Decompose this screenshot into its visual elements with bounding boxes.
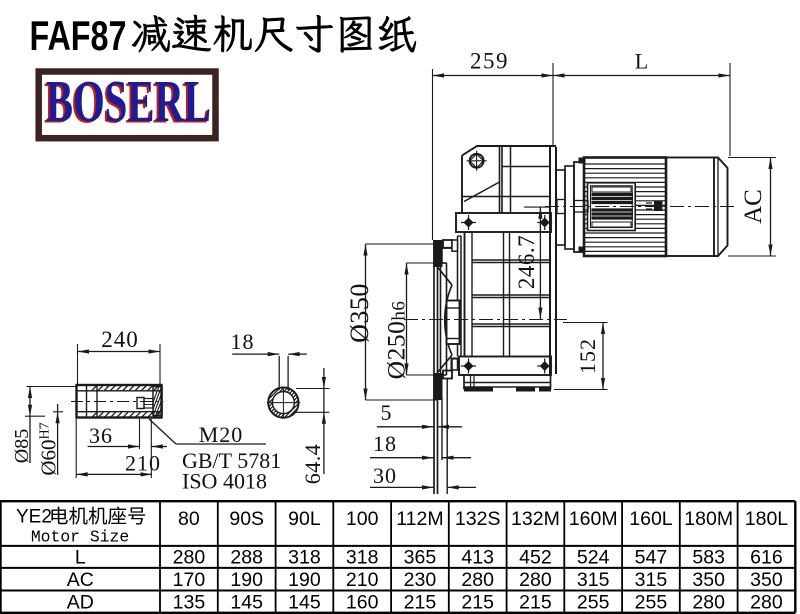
- svg-text:5: 5: [381, 400, 392, 425]
- svg-text:L: L: [75, 547, 86, 569]
- svg-text:350: 350: [692, 569, 725, 591]
- svg-text:288: 288: [230, 547, 263, 569]
- svg-text:246.7: 246.7: [514, 235, 539, 289]
- svg-text:90S: 90S: [229, 508, 264, 530]
- svg-text:524: 524: [577, 547, 610, 569]
- svg-text:145: 145: [288, 592, 321, 614]
- svg-text:BOSERL: BOSERL: [46, 69, 211, 134]
- svg-text:180L: 180L: [745, 508, 789, 530]
- svg-text:318: 318: [288, 547, 321, 569]
- svg-text:90L: 90L: [288, 508, 321, 530]
- svg-text:190: 190: [230, 569, 263, 591]
- svg-text:215: 215: [519, 592, 552, 614]
- svg-text:315: 315: [635, 569, 668, 591]
- svg-text:AC: AC: [740, 189, 767, 224]
- svg-text:30: 30: [373, 463, 397, 488]
- svg-text:Ø350: Ø350: [345, 283, 374, 343]
- svg-text:280: 280: [173, 547, 206, 569]
- svg-text:YE2: YE2: [16, 507, 52, 528]
- svg-text:210: 210: [346, 569, 379, 591]
- svg-text:280: 280: [692, 592, 725, 614]
- svg-text:318: 318: [346, 547, 379, 569]
- svg-text:112M: 112M: [396, 508, 443, 530]
- svg-text:259: 259: [470, 49, 509, 74]
- svg-text:Ø250h6: Ø250h6: [382, 301, 411, 380]
- svg-text:ISO 4018: ISO 4018: [182, 469, 267, 494]
- svg-text:255: 255: [635, 592, 668, 614]
- svg-text:547: 547: [635, 547, 668, 569]
- svg-text:315: 315: [577, 569, 610, 591]
- svg-text:145: 145: [230, 592, 263, 614]
- svg-text:AD: AD: [67, 592, 94, 614]
- svg-text:160L: 160L: [629, 508, 673, 530]
- svg-text:Ø60H7: Ø60H7: [37, 422, 61, 475]
- svg-text:152: 152: [575, 338, 600, 374]
- svg-text:36: 36: [89, 423, 113, 448]
- svg-text:18: 18: [231, 329, 255, 354]
- svg-text:FAF87: FAF87: [30, 12, 127, 59]
- svg-text:280: 280: [750, 592, 783, 614]
- svg-text:280: 280: [461, 569, 494, 591]
- svg-text:280: 280: [519, 569, 552, 591]
- svg-text:210: 210: [125, 451, 161, 476]
- svg-text:160: 160: [346, 592, 379, 614]
- svg-text:583: 583: [692, 547, 725, 569]
- svg-text:365: 365: [404, 547, 437, 569]
- svg-text:240: 240: [101, 327, 139, 352]
- svg-text:230: 230: [404, 569, 437, 591]
- svg-text:452: 452: [519, 547, 552, 569]
- svg-text:190: 190: [288, 569, 321, 591]
- svg-text:L: L: [635, 49, 648, 74]
- svg-text:132S: 132S: [455, 508, 501, 530]
- svg-text:180M: 180M: [684, 508, 733, 530]
- svg-text:215: 215: [461, 592, 494, 614]
- svg-text:616: 616: [750, 547, 783, 569]
- svg-text:M20: M20: [199, 422, 244, 447]
- svg-text:160M: 160M: [569, 508, 618, 530]
- svg-text:Motor Size: Motor Size: [31, 528, 129, 547]
- svg-text:64.4: 64.4: [300, 444, 325, 485]
- svg-text:18: 18: [373, 431, 397, 456]
- svg-text:170: 170: [173, 569, 206, 591]
- svg-text:132M: 132M: [511, 508, 560, 530]
- svg-text:135: 135: [173, 592, 206, 614]
- svg-text:255: 255: [577, 592, 610, 614]
- svg-text:Ø85: Ø85: [11, 429, 33, 463]
- svg-text:AC: AC: [67, 569, 94, 591]
- svg-text:350: 350: [750, 569, 783, 591]
- svg-text:413: 413: [461, 547, 494, 569]
- svg-text:215: 215: [404, 592, 437, 614]
- svg-text:80: 80: [178, 508, 200, 530]
- svg-text:100: 100: [346, 508, 379, 530]
